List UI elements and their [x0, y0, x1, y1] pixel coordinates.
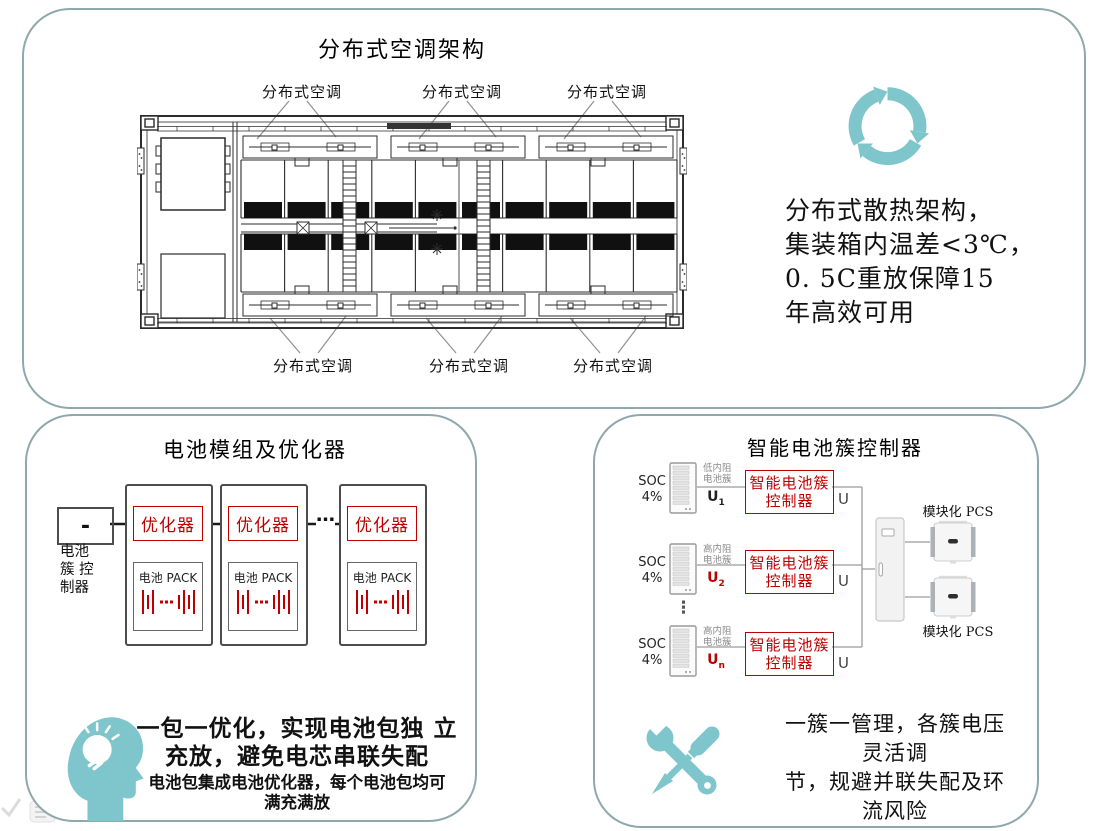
- soc-label-1: SOC 4%: [633, 474, 671, 506]
- pack-box-2: 电池 PACK: [228, 562, 298, 631]
- cluster-type-label-3: 高内阻 电池簇: [703, 627, 732, 648]
- battery-module-n: 优化器 电池 PACK: [339, 484, 427, 646]
- optimizer-box-1: 优化器: [133, 506, 203, 541]
- slide-canvas: 分布式空调架构 分布式空调 分布式空调 分布式空调 分布式空调 分布式空调 分布…: [0, 0, 1107, 831]
- optimizer-panel-title: 电池模组及优化器: [125, 434, 385, 464]
- ac-units-top: [243, 136, 673, 166]
- u-output-2: U: [838, 572, 849, 590]
- equipment-compartment: [156, 122, 237, 322]
- cluster-panel-title: 智能电池簇控制器: [705, 432, 965, 461]
- ac-label-bottom-3: 分布式空调: [573, 355, 653, 376]
- battery-rack-icon-2: [669, 543, 697, 595]
- module-chain-ellipsis: …: [316, 504, 335, 526]
- pcs-label-bottom: 模块化 PCS: [903, 621, 1013, 640]
- ac-label-top-2: 分布式空调: [422, 81, 502, 102]
- pcs-unit-icon-2: [930, 575, 976, 619]
- cluster-note: 一簇一管理，各簇电压 灵活调 节，规避并联失配及环 流风险: [765, 710, 1025, 826]
- cluster-type-label-1: 低内阻 电池簇: [703, 464, 732, 485]
- optimizer-box-2: 优化器: [228, 506, 298, 541]
- battery-module-2: 优化器 电池 PACK: [220, 484, 308, 646]
- battery-optimizer-panel: 电池模组及优化器 … - 电池 簇 控 制器 优化器 电池 PACK: [25, 414, 477, 822]
- ac-label-top-1: 分布式空调: [262, 81, 342, 102]
- battery-cells-icon: [234, 586, 292, 618]
- u1-label: U1: [699, 489, 733, 508]
- feature-line-2: 集装箱内温差<3℃，: [785, 228, 1035, 262]
- battery-cells-icon: [353, 586, 411, 618]
- cluster-type-label-2: 高内阻 电池簇: [703, 545, 732, 566]
- battery-cells-icon: [139, 586, 197, 618]
- check-mark-icon[interactable]: [2, 799, 20, 815]
- battery-rack-icon-3: [669, 625, 697, 677]
- optimizer-note-main: 一包一优化，实现电池包独 立 充放，避免电芯串联失配: [122, 715, 472, 771]
- ac-label-bottom-2: 分布式空调: [429, 355, 509, 376]
- battery-rack-icon-1: [669, 462, 697, 514]
- ac-label-top-3: 分布式空调: [567, 81, 647, 102]
- u2-label: U2: [699, 570, 733, 589]
- cooling-panel-title: 分布式空调架构: [272, 32, 532, 64]
- feature-line-3: 0. 5C重放保障15: [785, 262, 1035, 296]
- battery-module-1: 优化器 电池 PACK: [125, 484, 213, 646]
- cooling-feature-text: 分布式散热架构， 集装箱内温差<3℃， 0. 5C重放保障15 年高效可用: [785, 194, 1035, 330]
- pack-label: 电池 PACK: [139, 569, 198, 586]
- smart-controller-box-1: 智能电池簇 控制器: [745, 470, 834, 514]
- un-label: Un: [699, 652, 733, 671]
- soc-label-3: SOC 4%: [633, 637, 671, 669]
- optimizer-note-sub: 电池包集成电池优化器，每个电池包均可 满充满放: [122, 773, 472, 813]
- ac-units-bottom: [243, 286, 673, 316]
- pack-box-1: 电池 PACK: [133, 562, 203, 631]
- cluster-controller-box: -: [57, 507, 114, 545]
- u-output-3: U: [838, 654, 849, 672]
- vent-strip: [387, 123, 451, 129]
- recycle-icon: [830, 70, 945, 178]
- tools-icon: [634, 710, 734, 814]
- pack-label: 电池 PACK: [353, 569, 412, 586]
- minus-symbol: -: [81, 514, 90, 539]
- combiner-cabinet-icon: [875, 517, 905, 622]
- corner-fittings: [141, 116, 683, 328]
- pack-label: 电池 PACK: [234, 569, 293, 586]
- pcs-unit-icon-1: [930, 520, 976, 564]
- cooling-architecture-panel: 分布式空调架构 分布式空调 分布式空调 分布式空调 分布式空调 分布式空调 分布…: [22, 8, 1086, 409]
- u-output-1: U: [838, 490, 849, 508]
- pcs-label-top: 模块化 PCS: [903, 501, 1013, 520]
- ac-label-bottom-1: 分布式空调: [273, 355, 353, 376]
- smart-controller-box-2: 智能电池簇 控制器: [745, 550, 834, 594]
- side-plates: [137, 148, 687, 290]
- feature-line-4: 年高效可用: [785, 296, 1035, 330]
- container-top-view-diagram: [137, 112, 687, 332]
- cluster-controller-label: 电池 簇 控 制器: [60, 543, 94, 597]
- feature-line-1: 分布式散热架构，: [785, 194, 1035, 228]
- cluster-controller-panel: 智能电池簇控制器 SOC 4% 低内阻 电池簇: [593, 414, 1039, 828]
- row-ellipsis: ⋮: [675, 598, 692, 618]
- pack-box-n: 电池 PACK: [347, 562, 417, 631]
- smart-controller-box-3: 智能电池簇 控制器: [745, 632, 834, 676]
- optimizer-box-n: 优化器: [347, 506, 417, 541]
- soc-label-2: SOC 4%: [633, 555, 671, 587]
